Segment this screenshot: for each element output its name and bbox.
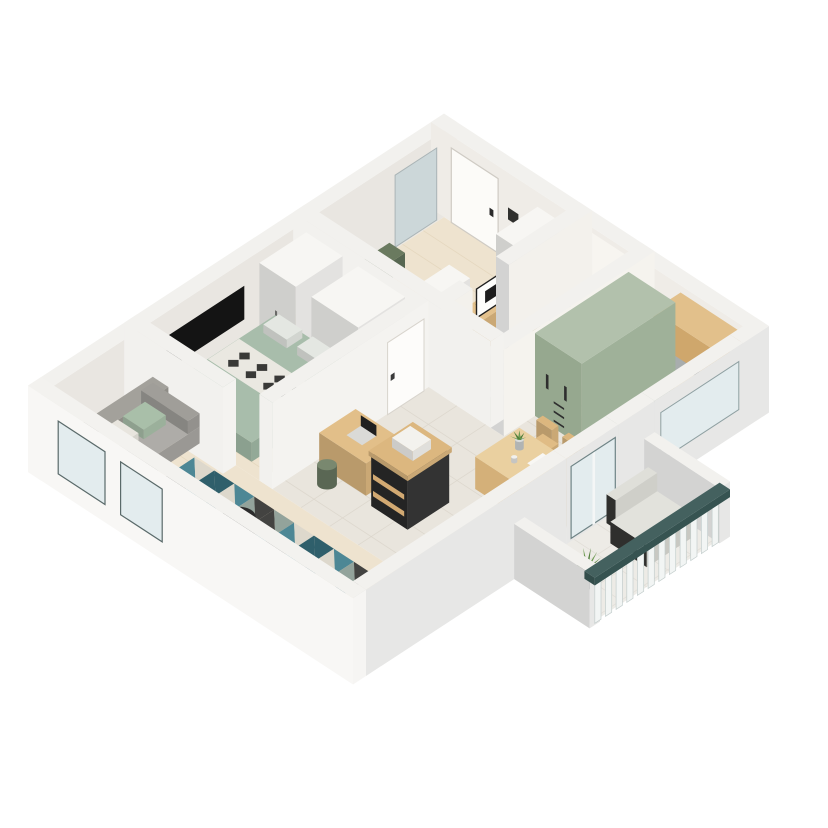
floorplan-stage <box>0 0 828 828</box>
pantry-door-handle-1 <box>546 374 549 390</box>
desk-stool <box>317 459 337 489</box>
pantry-door-handle-2 <box>564 386 567 402</box>
apartment-floorplan-render <box>0 0 828 828</box>
coffee-cup <box>511 455 517 463</box>
balcony-door-mullion <box>593 452 596 526</box>
